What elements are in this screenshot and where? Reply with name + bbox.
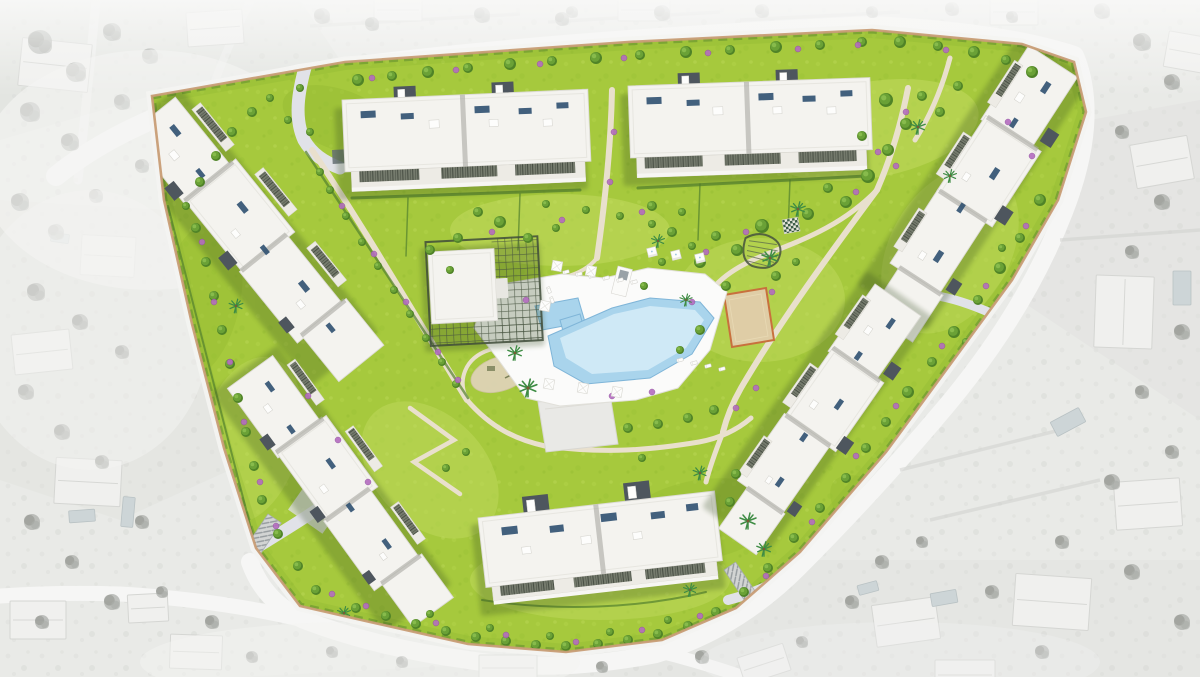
flowering-bush-icon [855, 42, 861, 48]
house-footprint [1130, 135, 1195, 188]
flowering-bush-icon [769, 289, 775, 295]
tree-icon [664, 616, 672, 624]
flowering-bush-icon [1029, 153, 1035, 159]
tree-icon [731, 469, 741, 479]
house-footprint [1094, 275, 1154, 349]
tree-icon [316, 168, 324, 176]
tree-icon [683, 413, 693, 423]
tree-icon [771, 271, 781, 281]
gray-tree-icon [1174, 324, 1190, 340]
parasol-icon [611, 386, 623, 398]
flowering-bush-icon [753, 385, 759, 391]
flowering-bush-icon [273, 523, 279, 529]
tree-icon [711, 231, 721, 241]
chess-board [782, 217, 800, 234]
flowering-bush-icon [329, 591, 335, 597]
gray-tree-icon [875, 555, 889, 569]
flowering-bush-icon [489, 229, 495, 235]
tree-icon [273, 529, 283, 539]
tree-icon [709, 405, 719, 415]
flowering-bush-icon [559, 217, 565, 223]
tree-icon [546, 632, 554, 640]
gray-tree-icon [1055, 535, 1069, 549]
tree-icon [770, 41, 782, 53]
flowering-bush-icon [573, 639, 579, 645]
flowering-bush-icon [257, 479, 263, 485]
tree-icon [462, 448, 470, 456]
tree-icon [953, 81, 963, 91]
tree-icon [453, 233, 463, 243]
tree-icon [191, 223, 201, 233]
pool-cabana [671, 250, 682, 261]
flowering-bush-icon [621, 55, 627, 61]
tree-icon [306, 128, 314, 136]
tree-icon [471, 632, 481, 642]
tree-icon [387, 71, 397, 81]
tree-icon [247, 107, 257, 117]
tree-icon [266, 94, 274, 102]
flowering-bush-icon [611, 129, 617, 135]
gray-tree-icon [1154, 194, 1170, 210]
flowering-bush-icon [365, 479, 371, 485]
gray-tree-icon [985, 585, 999, 599]
flowering-bush-icon [455, 377, 461, 383]
flowering-bush-icon [1023, 223, 1029, 229]
tree-icon [1034, 194, 1046, 206]
tree-icon [998, 244, 1006, 252]
tree-icon [293, 561, 303, 571]
tree-icon [342, 212, 350, 220]
tree-icon [994, 262, 1006, 274]
tree-icon [725, 45, 735, 55]
tree-icon [721, 281, 731, 291]
tree-icon [446, 266, 454, 274]
parasol-icon [577, 382, 589, 394]
tree-icon [725, 497, 735, 507]
flowering-bush-icon [943, 47, 949, 53]
tree-icon [438, 358, 446, 366]
tree-icon [927, 357, 937, 367]
tree-icon [441, 626, 451, 636]
tree-icon [933, 41, 943, 51]
tree-icon [635, 50, 645, 60]
tree-icon [374, 262, 382, 270]
gray-tree-icon [1174, 614, 1190, 630]
tree-icon [351, 603, 361, 613]
tree-icon [1001, 55, 1011, 65]
flowering-bush-icon [893, 163, 899, 169]
gray-tree-icon [1135, 385, 1149, 399]
flowering-bush-icon [705, 50, 711, 56]
gray-tree-icon [104, 594, 120, 610]
tree-icon [227, 127, 237, 137]
tree-icon [442, 464, 450, 472]
flowering-bush-icon [523, 297, 529, 303]
flowering-bush-icon [241, 419, 247, 425]
tree-icon [638, 454, 646, 462]
gray-tree-icon [1125, 245, 1139, 259]
tree-icon [504, 58, 516, 70]
flowering-bush-icon [371, 251, 377, 257]
tree-icon [763, 563, 773, 573]
tree-icon [902, 386, 914, 398]
parasol-icon [543, 378, 555, 390]
gray-tree-icon [845, 595, 859, 609]
flowering-bush-icon [199, 239, 205, 245]
tree-icon [640, 282, 648, 290]
gray-tree-icon [1165, 445, 1179, 459]
tree-icon [731, 244, 743, 256]
tree-icon [217, 325, 227, 335]
tree-icon [381, 611, 391, 621]
flowering-bush-icon [503, 632, 509, 638]
flowering-bush-icon [305, 393, 311, 399]
tree-icon [695, 325, 705, 335]
tree-icon [894, 36, 906, 48]
flowering-bush-icon [227, 359, 233, 365]
tree-icon [426, 610, 434, 618]
tree-icon [841, 473, 851, 483]
tree-icon [840, 196, 852, 208]
flowering-bush-icon [697, 613, 703, 619]
flowering-bush-icon [649, 389, 655, 395]
tree-icon [1015, 233, 1025, 243]
tree-icon [422, 66, 434, 78]
tree-icon [542, 200, 550, 208]
tree-icon [523, 233, 533, 243]
flowering-bush-icon [403, 299, 409, 305]
flowering-bush-icon [809, 519, 815, 525]
tree-icon [658, 258, 666, 266]
tree-icon [789, 533, 799, 543]
tree-icon [233, 393, 243, 403]
gray-tree-icon [205, 615, 219, 629]
tree-icon [653, 629, 663, 639]
screenshot-root [0, 0, 1200, 677]
gray-tree-icon [156, 586, 168, 598]
flowering-bush-icon [453, 67, 459, 73]
tree-icon [648, 220, 656, 228]
flowering-bush-icon [983, 283, 989, 289]
clubhouse [419, 236, 545, 352]
tree-icon [284, 116, 292, 124]
clubhouse-steps [495, 278, 508, 299]
parasol-icon [551, 260, 563, 272]
tree-icon [390, 286, 398, 294]
villa-pool [69, 509, 96, 523]
flowering-bush-icon [903, 109, 909, 115]
tree-icon [653, 419, 663, 429]
tree-icon [815, 503, 825, 513]
flowering-bush-icon [763, 573, 769, 579]
tree-icon [590, 52, 602, 64]
villa-pool [1173, 271, 1191, 305]
tree-icon [296, 84, 304, 92]
site-plan-render [0, 0, 1200, 677]
tree-icon [411, 619, 421, 629]
tree-icon [473, 207, 483, 217]
flowering-bush-icon [639, 627, 645, 633]
tree-icon [616, 212, 624, 220]
flowering-bush-icon [211, 299, 217, 305]
flowering-bush-icon [875, 149, 881, 155]
tree-icon [486, 624, 494, 632]
tree-icon [815, 40, 825, 50]
tree-icon [882, 144, 894, 156]
tree-icon [211, 151, 221, 161]
flowering-bush-icon [853, 453, 859, 459]
gray-tree-icon [35, 615, 49, 629]
gray-tree-icon [135, 515, 149, 529]
tree-icon [425, 245, 435, 255]
tree-icon [249, 461, 259, 471]
tree-icon [463, 63, 473, 73]
gray-tree-icon [1104, 474, 1120, 490]
villa-pool [121, 497, 136, 528]
flowering-bush-icon [893, 403, 899, 409]
flowering-bush-icon [537, 61, 543, 67]
tree-icon [676, 346, 684, 354]
parasol-icon [539, 300, 551, 312]
gray-tree-icon [596, 661, 608, 673]
tree-icon [857, 131, 867, 141]
tree-icon [547, 56, 557, 66]
tree-icon [406, 310, 414, 318]
tree-icon [647, 201, 657, 211]
tree-icon [606, 628, 614, 636]
pool-cabana [647, 247, 658, 258]
tree-icon [861, 443, 871, 453]
tree-icon [552, 224, 560, 232]
tree-icon [680, 46, 692, 58]
tree-icon [688, 242, 696, 250]
flowering-bush-icon [369, 75, 375, 81]
gray-tree-icon [65, 555, 79, 569]
gray-tree-icon [1124, 564, 1140, 580]
tree-icon [881, 417, 891, 427]
tree-icon [755, 219, 769, 233]
tree-icon [935, 107, 945, 117]
flowering-bush-icon [607, 179, 613, 185]
tree-icon [1026, 66, 1038, 78]
tree-icon [352, 74, 364, 86]
parasol-icon [585, 265, 597, 277]
flowering-bush-icon [435, 349, 441, 355]
tree-icon [823, 183, 833, 193]
tree-icon [195, 177, 205, 187]
tree-icon [678, 208, 686, 216]
tree-icon [917, 91, 927, 101]
flowering-bush-icon [733, 405, 739, 411]
tree-icon [326, 186, 334, 194]
flowering-bush-icon [1005, 119, 1011, 125]
tree-icon [968, 46, 980, 58]
tree-icon [182, 202, 190, 210]
flowering-bush-icon [339, 203, 345, 209]
house-footprint [1012, 573, 1091, 630]
tree-icon [311, 585, 321, 595]
flowering-bush-icon [363, 603, 369, 609]
flowering-bush-icon [939, 343, 945, 349]
flowering-bush-icon [853, 189, 859, 195]
tree-icon [358, 238, 366, 246]
flowering-bush-icon [639, 209, 645, 215]
tree-icon [973, 295, 983, 305]
petanque-court [724, 288, 774, 347]
gray-tree-icon [1115, 125, 1129, 139]
tree-icon [739, 587, 749, 597]
tree-icon [241, 427, 251, 437]
tree-icon [561, 641, 571, 651]
flowering-bush-icon [433, 620, 439, 626]
tree-icon [879, 93, 893, 107]
tree-icon [582, 206, 590, 214]
tree-icon [494, 216, 506, 228]
tree-icon [623, 423, 633, 433]
tree-icon [802, 208, 814, 220]
tree-icon [861, 169, 875, 183]
gray-tree-icon [24, 514, 40, 530]
tree-icon [667, 227, 677, 237]
house-footprint [1113, 478, 1182, 530]
tree-icon [257, 495, 267, 505]
tree-icon [422, 334, 430, 342]
tree-icon [201, 257, 211, 267]
gray-tree-icon [916, 536, 928, 548]
flowering-bush-icon [795, 46, 801, 52]
tree-icon [792, 258, 800, 266]
tree-icon [948, 326, 960, 338]
flowering-bush-icon [743, 229, 749, 235]
pool-cabana [695, 253, 706, 264]
flowering-bush-icon [335, 437, 341, 443]
